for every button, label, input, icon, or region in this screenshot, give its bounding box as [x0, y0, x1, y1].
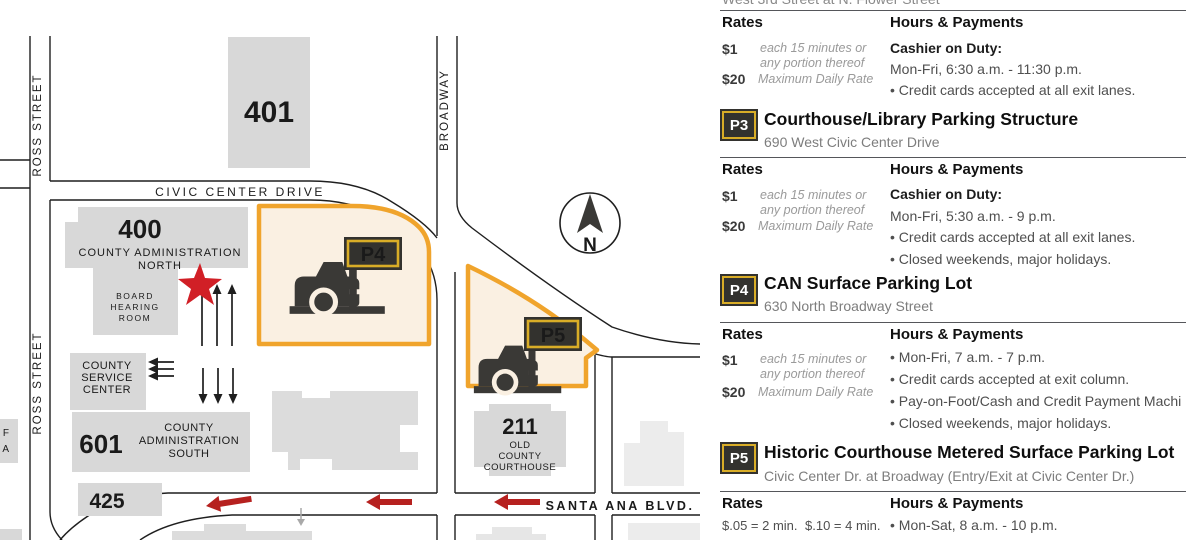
- label-400-number: 400: [118, 214, 161, 244]
- label-211-name2: COUNTY: [498, 451, 541, 462]
- rate-amount: $1: [722, 352, 738, 368]
- building-corner-partial: [0, 529, 22, 540]
- label-santa-ana-blvd: SANTA ANA BLVD.: [546, 499, 695, 513]
- rate-amount: $1: [722, 188, 738, 204]
- label-211-number: 211: [502, 414, 538, 439]
- p5-address: Civic Center Dr. at Broadway (Entry/Exit…: [764, 468, 1134, 484]
- label-601-name3: SOUTH: [169, 448, 210, 460]
- rate-desc: any portion thereof: [760, 203, 864, 217]
- building-unlabeled-south-right: [628, 523, 700, 540]
- svg-text:N: N: [583, 235, 597, 256]
- rate-amount: $20: [722, 71, 745, 87]
- small-gray-down-arrow: [297, 508, 305, 526]
- divider: [720, 10, 1186, 11]
- rate-desc: any portion thereof: [760, 367, 864, 381]
- bullet-line: • Credit cards accepted at all exit lane…: [890, 82, 1135, 98]
- flow-arrows-down: [199, 368, 238, 404]
- label-601-name1: COUNTY: [164, 422, 214, 434]
- hours-heading: Hours & Payments: [890, 161, 1023, 178]
- label-401: 401: [244, 96, 294, 129]
- star-marker: [178, 263, 222, 305]
- rates-heading: Rates: [722, 161, 763, 178]
- building-unlabeled-south-mid: [476, 527, 546, 540]
- map-canvas: P4 P5 N: [0, 0, 700, 540]
- rate-desc: Maximum Daily Rate: [758, 72, 873, 86]
- label-601-number: 601: [79, 429, 122, 459]
- label-edge-partial-1: F: [3, 428, 9, 439]
- rate-desc: any portion thereof: [760, 56, 864, 70]
- rates-heading: Rates: [722, 326, 763, 343]
- cashier-label: Cashier on Duty:: [890, 186, 1002, 202]
- bullet-line: • Credit cards accepted at all exit lane…: [890, 229, 1135, 245]
- bullet-line: • Mon-Fri, 7 a.m. - 7 p.m.: [890, 349, 1045, 365]
- label-board-2: HEARING: [110, 302, 159, 312]
- p4-badge: P4: [722, 276, 756, 304]
- p4-title: CAN Surface Parking Lot: [764, 273, 972, 294]
- p5-map-badge: P5: [524, 317, 582, 351]
- label-csc-3: CENTER: [83, 384, 131, 396]
- rate-amount: $20: [722, 384, 745, 400]
- santa-ana-red-arrows: [205, 491, 540, 514]
- info-panel: West 3rd Street at N. Flower Street Rate…: [700, 0, 1200, 540]
- rates-heading: Rates: [722, 14, 763, 31]
- label-ross-street-bottom: ROSS STREET: [32, 331, 44, 434]
- rate-desc: each 15 minutes or: [760, 41, 866, 55]
- building-unlabeled-east: [624, 421, 684, 486]
- cashier-label: Cashier on Duty:: [890, 40, 1002, 56]
- p3-address: 690 West Civic Center Drive: [764, 134, 940, 150]
- label-400-name2: NORTH: [138, 260, 182, 272]
- p3-badge: P3: [722, 111, 756, 139]
- p3-title: Courthouse/Library Parking Structure: [764, 109, 1078, 130]
- label-425: 425: [89, 490, 124, 513]
- rate-desc: each 15 minutes or: [760, 188, 866, 202]
- svg-text:P5: P5: [541, 325, 565, 347]
- label-211-name1: OLD: [509, 440, 530, 451]
- hours-heading: Hours & Payments: [890, 495, 1023, 512]
- label-601-name2: ADMINISTRATION: [139, 435, 239, 447]
- building-unlabeled-center: [272, 391, 418, 470]
- label-civic-center-drive: CIVIC CENTER DRIVE: [155, 185, 325, 199]
- bullet-line: • Closed weekends, major holidays.: [890, 415, 1111, 431]
- divider: [720, 322, 1186, 323]
- p5-title: Historic Courthouse Metered Surface Park…: [764, 442, 1174, 463]
- bullet-line: • Closed weekends, major holidays.: [890, 251, 1111, 267]
- bullet-line: • Mon-Sat, 8 a.m. - 10 p.m.: [890, 517, 1058, 533]
- rate-amount: $1: [722, 41, 738, 57]
- hours-heading: Hours & Payments: [890, 326, 1023, 343]
- label-board-1: BOARD: [116, 291, 154, 301]
- flow-arrows-left: [148, 358, 174, 381]
- rate-desc: Maximum Daily Rate: [758, 385, 873, 399]
- p5-badge: P5: [722, 444, 756, 472]
- label-400-name1: COUNTY ADMINISTRATION: [79, 247, 242, 259]
- label-ross-street-top: ROSS STREET: [32, 73, 44, 176]
- rate-desc: Maximum Daily Rate: [758, 219, 873, 233]
- label-broadway: BROADWAY: [439, 69, 451, 151]
- rate-amount: $20: [722, 218, 745, 234]
- svg-text:P4: P4: [361, 244, 386, 266]
- hours-heading: Hours & Payments: [890, 14, 1023, 31]
- schedule-line: Mon-Fri, 5:30 a.m. - 9 p.m.: [890, 208, 1056, 224]
- label-board-3: ROOM: [119, 313, 151, 323]
- bullet-line: • Pay-on-Foot/Cash and Credit Payment Ma…: [890, 393, 1181, 409]
- rate-desc: each 15 minutes or: [760, 352, 866, 366]
- divider: [720, 491, 1186, 492]
- building-unlabeled-south-left: [172, 524, 312, 540]
- divider: [720, 157, 1186, 158]
- label-edge-partial-2: A: [2, 444, 9, 455]
- p4-address: 630 North Broadway Street: [764, 298, 933, 314]
- parking-map: P4 P5 N: [0, 0, 700, 540]
- bullet-line: • Credit cards accepted at exit column.: [890, 371, 1129, 387]
- truncated-address: West 3rd Street at N. Flower Street: [722, 0, 940, 7]
- parking-flyer: P4 P5 N: [0, 0, 1200, 540]
- p4-map-badge: P4: [344, 237, 402, 270]
- label-csc-2: SERVICE: [81, 372, 133, 384]
- meter-rate: $.05 = 2 min.: [722, 518, 798, 533]
- building-edge-partial: [0, 419, 18, 463]
- compass-north-icon: N: [560, 193, 620, 256]
- meter-rate: $.10 = 4 min.: [805, 518, 881, 533]
- label-211-name3: COURTHOUSE: [484, 462, 556, 473]
- label-csc-1: COUNTY: [82, 360, 132, 372]
- rates-heading: Rates: [722, 495, 763, 512]
- schedule-line: Mon-Fri, 6:30 a.m. - 11:30 p.m.: [890, 61, 1082, 77]
